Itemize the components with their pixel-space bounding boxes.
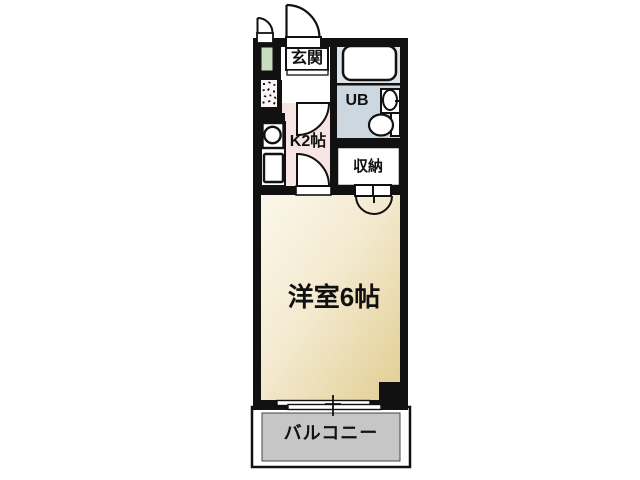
closet-door-panel-left xyxy=(355,185,373,196)
kitchen-sink-icon xyxy=(264,154,283,182)
entrance-door-swing xyxy=(287,5,320,38)
cabinet-door-swing xyxy=(258,18,273,33)
wall-right xyxy=(400,38,408,410)
storage-label: 収納 xyxy=(340,155,396,177)
stove-burner-icon xyxy=(264,127,280,143)
room-entry-sill xyxy=(296,186,331,195)
entrance-label: 玄関 xyxy=(286,48,328,70)
cabinet-door-sill xyxy=(257,33,273,43)
floorplan-drawing xyxy=(0,0,640,480)
balcony-label: バルコニー xyxy=(266,421,396,445)
kitchen-label: K2帖 xyxy=(282,131,334,153)
closet-door-panel-right xyxy=(373,185,391,196)
toilet-icon xyxy=(369,115,393,136)
shoe-cabinet xyxy=(261,47,273,71)
unit-bath-label: UB xyxy=(337,88,377,114)
pillar xyxy=(379,382,408,410)
wall-cabinet-bottom xyxy=(253,71,281,80)
bath-divider xyxy=(337,83,400,86)
entrance-step xyxy=(287,70,328,75)
wall-counter-stub xyxy=(261,113,285,122)
wall-ub-storage xyxy=(330,138,408,147)
wall-left xyxy=(253,38,261,410)
bathtub-icon xyxy=(343,46,396,80)
entrance-door-sill xyxy=(286,37,321,48)
floorplan: 玄関 UB K2帖 収納 洋室6帖 バルコニー xyxy=(0,0,640,480)
wash-basin-icon xyxy=(383,90,397,110)
main-room-label: 洋室6帖 xyxy=(262,280,406,314)
window-pane-right xyxy=(288,405,381,410)
